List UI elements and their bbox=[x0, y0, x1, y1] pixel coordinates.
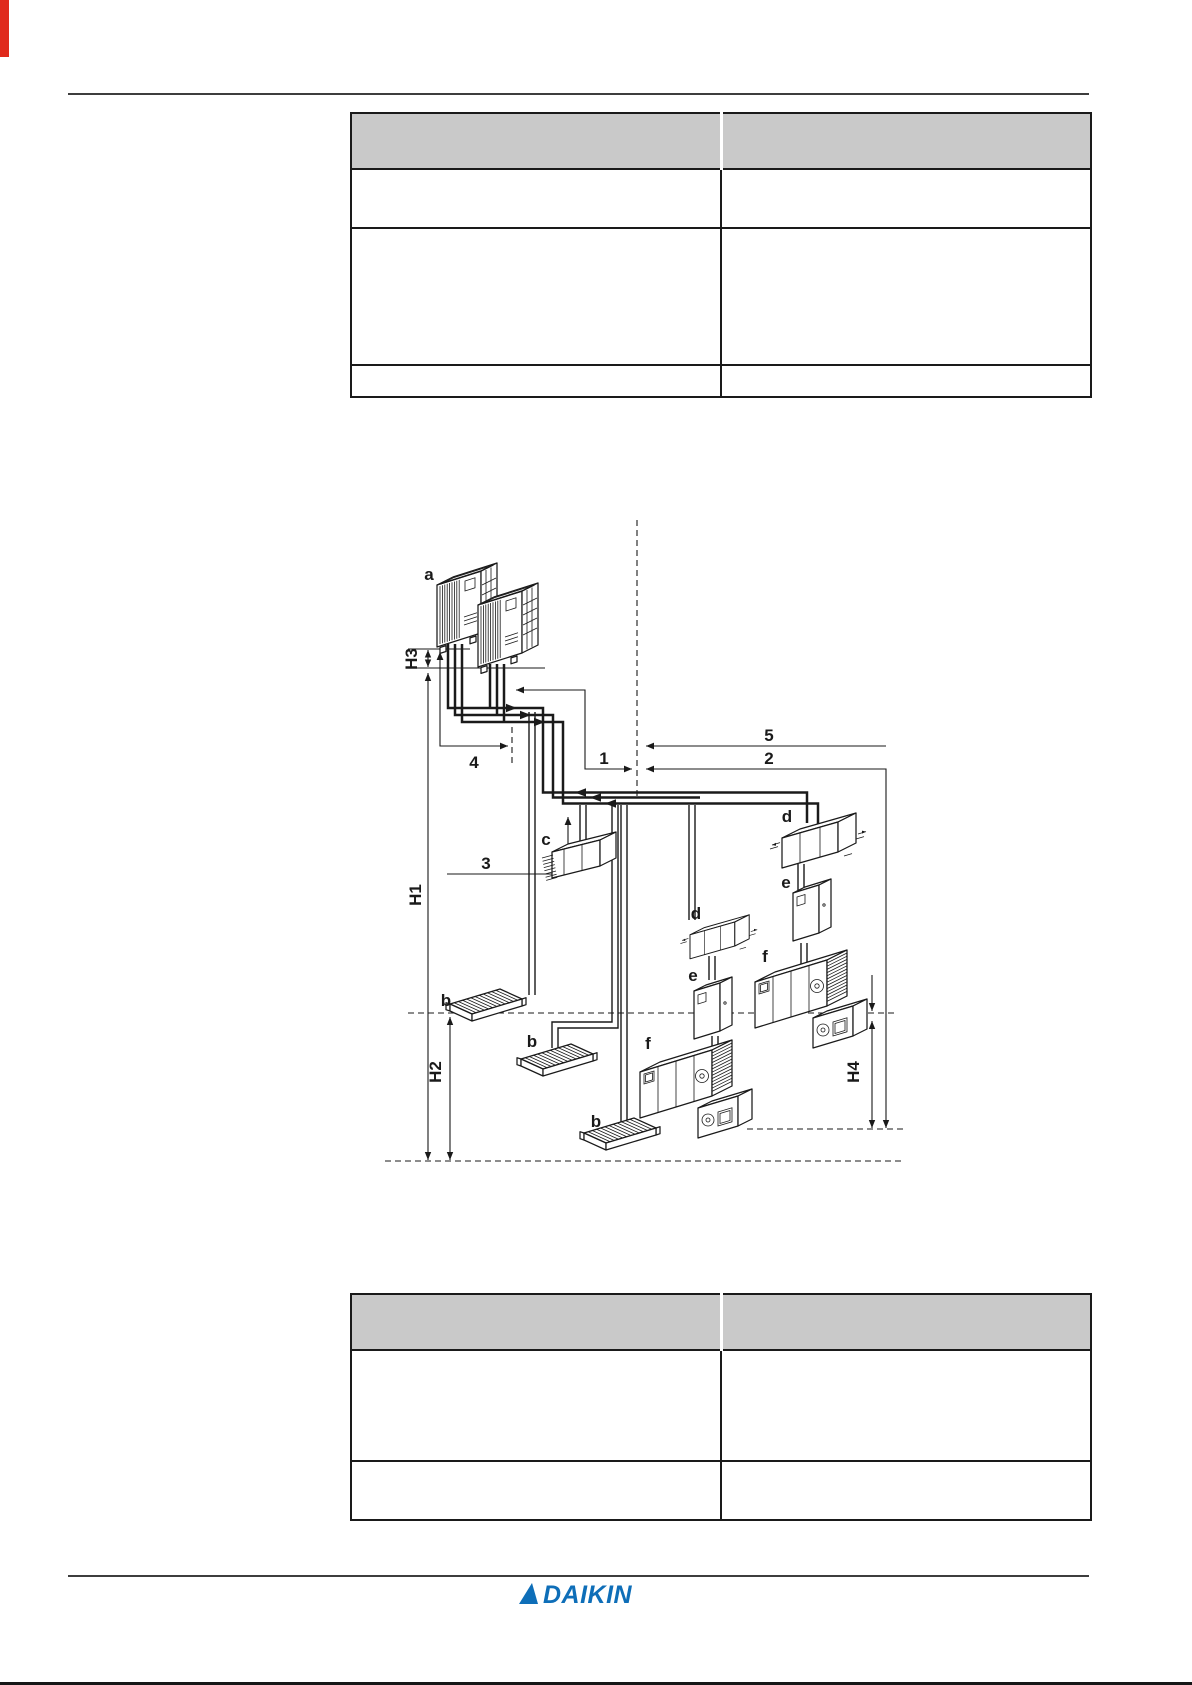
branch-box-unit bbox=[542, 832, 616, 880]
ahu-label: f bbox=[645, 1034, 651, 1053]
ahu-unit bbox=[640, 1040, 752, 1138]
spec-table-bottom bbox=[350, 1293, 1092, 1521]
table-cell bbox=[721, 1461, 1091, 1520]
footer: DAIKIN bbox=[0, 1580, 1192, 1608]
cassette-label: b bbox=[527, 1032, 537, 1051]
callout-5-label: 5 bbox=[764, 726, 773, 745]
callout-1-label: 1 bbox=[599, 749, 608, 768]
height-h3-label: H3 bbox=[402, 648, 421, 670]
manual-page: { "colors": { "accent_red": "#e02a1c", "… bbox=[0, 0, 1192, 1685]
duct-unit-label: d bbox=[782, 807, 792, 826]
callout-2-label: 2 bbox=[764, 749, 773, 768]
height-h1-label: H1 bbox=[406, 884, 425, 906]
daikin-logo-swoosh bbox=[519, 1583, 538, 1604]
outdoor-unit-label: a bbox=[424, 565, 434, 584]
refrigerant-piping bbox=[448, 644, 818, 1122]
table-cell bbox=[721, 1350, 1091, 1461]
duct-unit-label: d bbox=[691, 904, 701, 923]
branch-box-label: c bbox=[541, 830, 550, 849]
callout-3-label: 3 bbox=[481, 854, 490, 873]
table-cell bbox=[351, 1350, 721, 1461]
callout-4-label: 4 bbox=[469, 753, 479, 772]
table-cell bbox=[351, 1461, 721, 1520]
footer-rule bbox=[68, 1575, 1089, 1577]
height-h4-label: H4 bbox=[844, 1061, 863, 1083]
ev-kit-label: e bbox=[688, 966, 697, 985]
height-h2-label: H2 bbox=[426, 1061, 445, 1083]
daikin-logo: DAIKIN bbox=[517, 1580, 675, 1608]
cassette-label: b bbox=[441, 991, 451, 1010]
ahu-label: f bbox=[762, 947, 768, 966]
ahu-unit bbox=[755, 950, 867, 1048]
table-header-cell bbox=[721, 1294, 1091, 1350]
ev-kit-label: e bbox=[781, 873, 790, 892]
cassette-label: b bbox=[591, 1112, 601, 1131]
cassette-unit bbox=[446, 989, 526, 1021]
ev-kit-unit bbox=[694, 977, 732, 1039]
table-header-cell bbox=[351, 1294, 721, 1350]
daikin-logo-text: DAIKIN bbox=[543, 1581, 633, 1608]
